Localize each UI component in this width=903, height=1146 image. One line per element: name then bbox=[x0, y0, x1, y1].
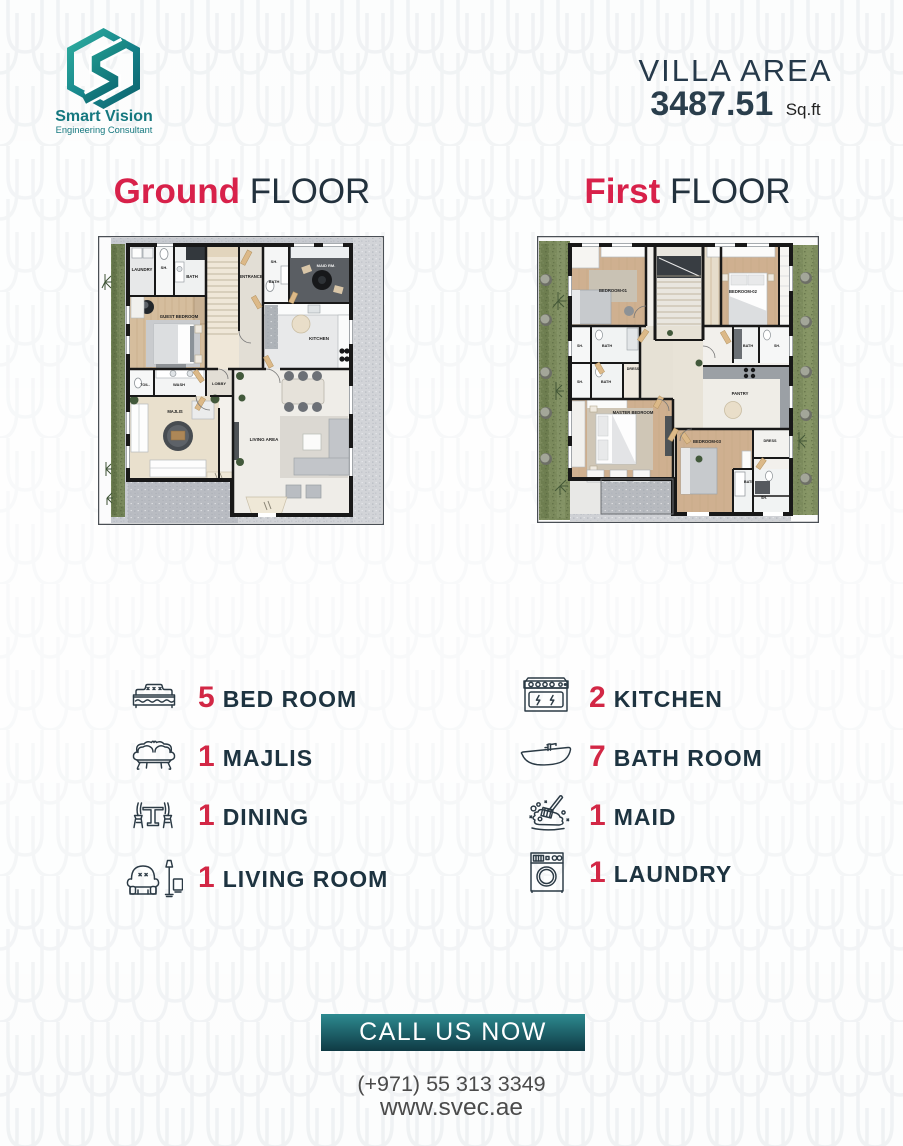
svg-text:BATH: BATH bbox=[743, 344, 754, 348]
svg-text:DRESS: DRESS bbox=[763, 439, 777, 443]
svg-text:GUEST BEDROOM: GUEST BEDROOM bbox=[160, 314, 199, 319]
svg-text:LOBBY: LOBBY bbox=[212, 381, 226, 386]
svg-text:BEDROOM-02: BEDROOM-02 bbox=[729, 289, 758, 294]
svg-text:BATH: BATH bbox=[602, 344, 613, 348]
svg-text:BATH: BATH bbox=[601, 380, 612, 384]
svg-text:LIVING AREA: LIVING AREA bbox=[250, 437, 280, 442]
svg-text:TOIL.: TOIL. bbox=[140, 383, 150, 387]
svg-text:ENTRANCE: ENTRANCE bbox=[239, 274, 262, 279]
svg-text:SH.: SH. bbox=[161, 265, 168, 270]
svg-text:MASTER BEDROOM: MASTER BEDROOM bbox=[613, 410, 654, 415]
svg-text:BEDROOM-01: BEDROOM-01 bbox=[599, 288, 628, 293]
svg-text:Engineering Consultant: Engineering Consultant bbox=[56, 125, 153, 135]
svg-text:WASH: WASH bbox=[173, 382, 185, 387]
svg-text:BATH: BATH bbox=[186, 274, 198, 279]
svg-text:MAID RM.: MAID RM. bbox=[317, 263, 336, 268]
svg-text:PANTRY: PANTRY bbox=[732, 391, 749, 396]
svg-text:SH.: SH. bbox=[271, 259, 278, 264]
svg-text:BATH: BATH bbox=[269, 279, 280, 284]
svg-text:DRESS: DRESS bbox=[627, 367, 640, 371]
svg-text:KITCHEN: KITCHEN bbox=[309, 336, 329, 341]
svg-text:SH.: SH. bbox=[774, 344, 780, 348]
svg-text:MAJLIS: MAJLIS bbox=[167, 409, 183, 414]
svg-text:LAUNDRY: LAUNDRY bbox=[132, 267, 153, 272]
svg-text:BEDROOM-03: BEDROOM-03 bbox=[693, 439, 722, 444]
svg-text:SH.: SH. bbox=[577, 380, 583, 384]
svg-text:Smart Vision: Smart Vision bbox=[55, 108, 153, 125]
svg-text:SH.: SH. bbox=[577, 344, 583, 348]
